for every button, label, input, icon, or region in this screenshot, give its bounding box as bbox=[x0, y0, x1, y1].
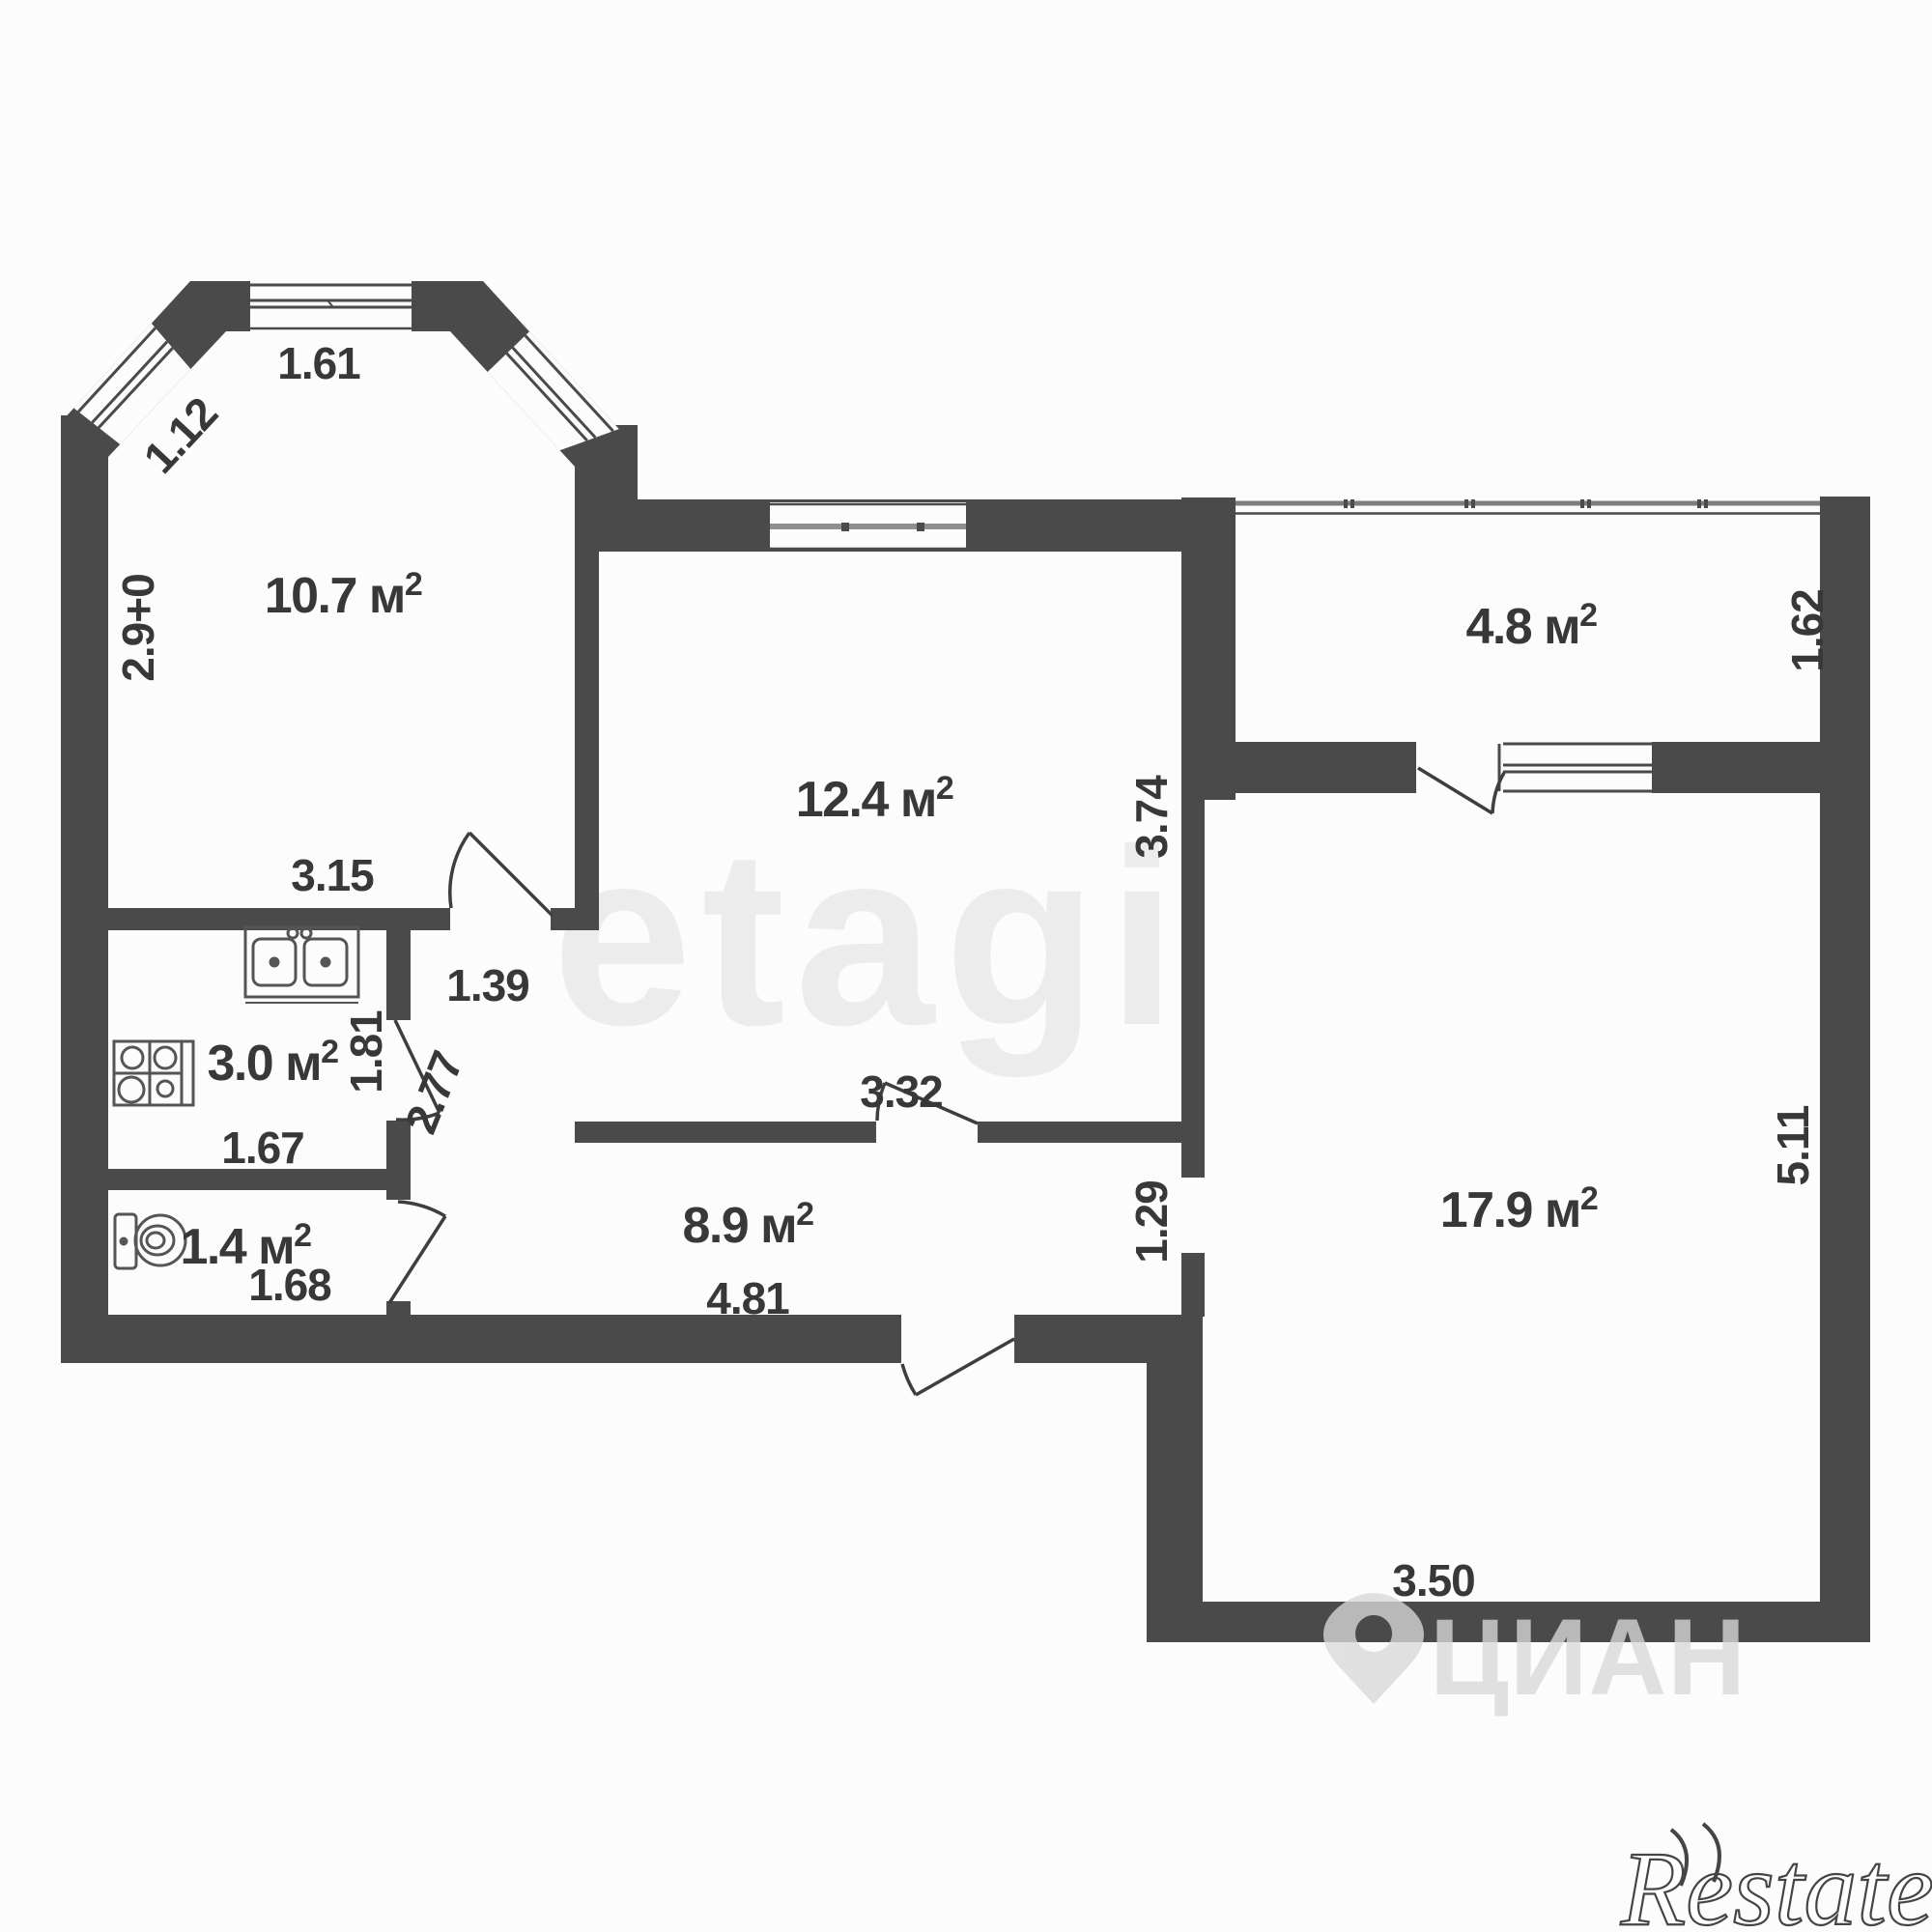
svg-text:8.9 м2: 8.9 м2 bbox=[682, 1196, 813, 1254]
svg-text:1.29: 1.29 bbox=[1126, 1180, 1177, 1264]
svg-text:ЦИАН: ЦИАН bbox=[1430, 1597, 1747, 1718]
svg-text:3.32: 3.32 bbox=[860, 1066, 943, 1117]
svg-text:3.0 м2: 3.0 м2 bbox=[207, 1034, 338, 1092]
svg-text:3.50: 3.50 bbox=[1392, 1555, 1475, 1605]
svg-text:4.8 м2: 4.8 м2 bbox=[1465, 597, 1597, 655]
svg-text:1.39: 1.39 bbox=[446, 960, 529, 1010]
svg-text:1.68: 1.68 bbox=[248, 1260, 331, 1310]
svg-text:3.74: 3.74 bbox=[1126, 775, 1177, 859]
svg-text:1.62: 1.62 bbox=[1782, 589, 1833, 672]
svg-text:3.15: 3.15 bbox=[291, 850, 374, 900]
svg-text:17.9 м2: 17.9 м2 bbox=[1440, 1180, 1598, 1238]
svg-text:2.9+0: 2.9+0 bbox=[113, 574, 163, 681]
svg-text:1.67: 1.67 bbox=[221, 1122, 304, 1173]
svg-text:4.81: 4.81 bbox=[706, 1273, 789, 1323]
svg-text:1.81: 1.81 bbox=[341, 1010, 391, 1094]
svg-text:1.61: 1.61 bbox=[277, 338, 360, 388]
svg-text:5.11: 5.11 bbox=[1768, 1105, 1818, 1185]
svg-text:Restate: Restate bbox=[1620, 1830, 1932, 1932]
svg-text:12.4 м2: 12.4 м2 bbox=[796, 770, 953, 828]
svg-text:etagi: etagi bbox=[553, 798, 1187, 1079]
svg-text:10.7 м2: 10.7 м2 bbox=[265, 566, 422, 624]
